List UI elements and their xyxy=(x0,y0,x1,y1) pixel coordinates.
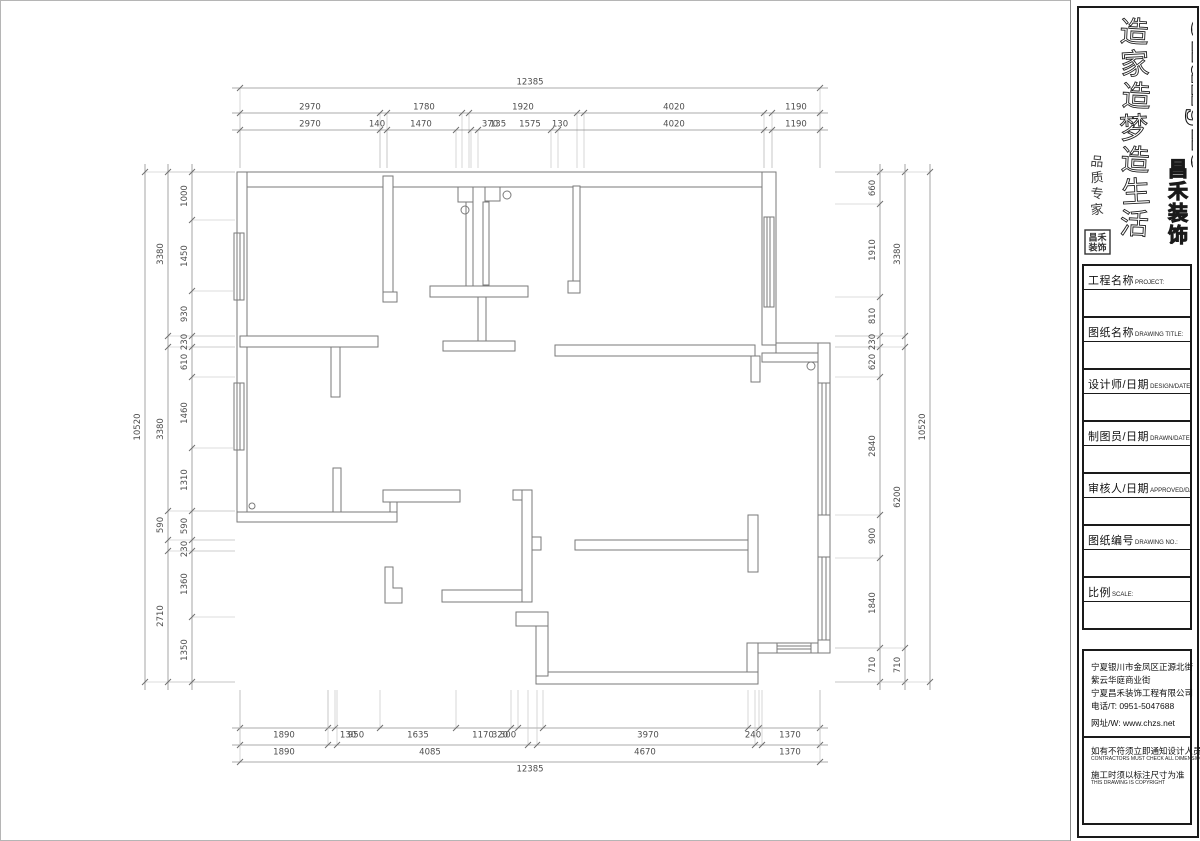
title-block-value-cell xyxy=(1084,550,1190,578)
dim-label: 3970 xyxy=(637,731,659,740)
title-block-row-label: 审核人/日期APPROVED/DATE: xyxy=(1084,474,1190,498)
title-block-row-label: 比例SCALE: xyxy=(1084,578,1190,602)
dim-label: 2970 xyxy=(299,121,321,130)
note-en: THIS DRAWING IS COPYRIGHT xyxy=(1091,780,1186,787)
calligraphy-char: 品 xyxy=(1090,154,1104,170)
dim-label: 930 xyxy=(181,306,190,322)
title-block-value-cell xyxy=(1084,602,1190,628)
floorplan-sheet: { "sheet": { "colors": { "wall_line": "#… xyxy=(0,0,1200,841)
dim-label: 1780 xyxy=(413,104,435,113)
brand-logo-area: Changhe昌禾装饰造家造梦造生活品质专家昌禾装饰 xyxy=(1079,8,1193,260)
dim-label: 300 xyxy=(500,731,516,740)
title-block-row-label: 设计师/日期DESIGN/DATE: xyxy=(1084,370,1190,394)
dim-label: 710 xyxy=(869,657,878,673)
dim-label: 3380 xyxy=(157,418,166,440)
calligraphy-char: 家 xyxy=(1090,201,1105,218)
dim-label: 2710 xyxy=(157,605,166,627)
dim-label: 1370 xyxy=(779,731,801,740)
company-address: 宁夏银川市金凤区正源北街紫云华庭商业街宁夏昌禾装饰工程有限公司电话/T: 095… xyxy=(1084,651,1190,736)
slogan-char: 造 xyxy=(1121,78,1152,113)
dim-label: 1170 xyxy=(472,731,494,740)
dim-label: 950 xyxy=(348,731,364,740)
dim-label: 4670 xyxy=(634,748,656,757)
dim-label: 3380 xyxy=(157,243,166,265)
panel-frame: Changhe昌禾装饰造家造梦造生活品质专家昌禾装饰 工程名称PROJECT:图… xyxy=(1077,6,1199,838)
dim-label: 230 xyxy=(181,334,190,350)
dim-label: 1840 xyxy=(869,592,878,614)
dim-label: 590 xyxy=(157,517,166,533)
note-en: CONTRACTORS MUST CHECK ALL DIMENSIONS ON… xyxy=(1091,756,1186,763)
dim-label: 240 xyxy=(745,731,761,740)
dim-label: 2840 xyxy=(869,435,878,457)
dim-label: 1460 xyxy=(181,402,190,424)
title-block-label-cn: 设计师/日期 xyxy=(1088,379,1149,391)
title-block-value-cell xyxy=(1084,342,1190,370)
title-block-label-en: DRAWING TITLE: xyxy=(1135,332,1183,338)
drawing-notes: 如有不符须立即通知设计人员CONTRACTORS MUST CHECK ALL … xyxy=(1084,736,1190,798)
dim-label: 1190 xyxy=(785,121,807,130)
title-block-row-label: 工程名称PROJECT: xyxy=(1084,266,1190,290)
dim-label: 135 xyxy=(490,121,506,130)
dim-label: 1470 xyxy=(410,121,432,130)
title-block-label-en: SCALE: xyxy=(1112,592,1133,598)
dim-label: 1370 xyxy=(779,748,801,757)
title-block-label-en: APPROVED/DATE: xyxy=(1150,488,1190,494)
title-block-label-en: DRAWN/DATE: xyxy=(1150,436,1190,442)
address-line: 紫云华庭商业街 xyxy=(1091,674,1185,687)
dim-label: 710 xyxy=(894,657,903,673)
title-block-label-cn: 比例 xyxy=(1088,587,1111,599)
dim-label: 1360 xyxy=(181,573,190,595)
slogan-char: 造 xyxy=(1120,142,1151,177)
brand-logo-cn-char: 装 xyxy=(1167,201,1188,225)
dim-label: 610 xyxy=(181,354,190,370)
dim-label: 1450 xyxy=(181,245,190,267)
title-block-label-en: DRAWING NO.: xyxy=(1135,540,1178,546)
dim-label: 4020 xyxy=(663,121,685,130)
dim-label: 10520 xyxy=(919,413,928,440)
title-block-label-cn: 审核人/日期 xyxy=(1088,483,1149,495)
dim-label: 230 xyxy=(181,541,190,557)
dim-label: 620 xyxy=(869,354,878,370)
dim-label: 1000 xyxy=(181,185,190,207)
title-block-value-cell xyxy=(1084,446,1190,474)
title-block-label-cn: 制图员/日期 xyxy=(1088,431,1149,443)
dim-label: 1310 xyxy=(181,469,190,491)
title-block-row-label: 制图员/日期DRAWN/DATE: xyxy=(1084,422,1190,446)
title-block-label-en: PROJECT: xyxy=(1135,280,1164,286)
dim-label: 2970 xyxy=(299,104,321,113)
address-line: 网址/W: www.chzs.net xyxy=(1091,717,1185,730)
dim-label: 810 xyxy=(869,308,878,324)
title-block-row-label: 图纸编号DRAWING NO.: xyxy=(1084,526,1190,550)
title-block-value-cell xyxy=(1084,498,1190,526)
dim-label: 1910 xyxy=(869,239,878,261)
title-block: 工程名称PROJECT:图纸名称DRAWING TITLE:设计师/日期DESI… xyxy=(1082,264,1192,630)
dim-label: 1890 xyxy=(273,731,295,740)
title-panel: Changhe昌禾装饰造家造梦造生活品质专家昌禾装饰 工程名称PROJECT:图… xyxy=(1070,0,1200,841)
dim-label: 12385 xyxy=(516,765,543,774)
note-cn: 如有不符须立即通知设计人员 xyxy=(1091,746,1186,756)
calligraphy-char: 质 xyxy=(1090,170,1105,186)
brand-logo-cn-char: 昌 xyxy=(1168,157,1188,181)
slogan-char: 家 xyxy=(1119,46,1150,81)
calligraphy-char: 专 xyxy=(1090,186,1104,202)
dim-label: 1890 xyxy=(273,748,295,757)
dim-label: 230 xyxy=(869,334,878,350)
title-block-value-cell xyxy=(1084,290,1190,318)
address-line: 电话/T: 0951-5047688 xyxy=(1091,700,1185,713)
dim-label: 660 xyxy=(869,180,878,196)
title-block-label-cn: 工程名称 xyxy=(1088,275,1134,287)
dim-label: 130 xyxy=(552,121,568,130)
title-block-value-cell xyxy=(1084,394,1190,422)
slogan-char: 梦 xyxy=(1118,110,1149,145)
title-block-row-label: 图纸名称DRAWING TITLE: xyxy=(1084,318,1190,342)
dim-label: 6200 xyxy=(894,486,903,508)
info-block: 宁夏银川市金凤区正源北街紫云华庭商业街宁夏昌禾装饰工程有限公司电话/T: 095… xyxy=(1082,649,1192,825)
dim-label: 1575 xyxy=(519,121,541,130)
dim-label: 140 xyxy=(369,121,385,130)
slogan-char: 生 xyxy=(1120,174,1151,209)
brand-logo-cn-char: 禾 xyxy=(1168,179,1188,203)
seal-text-line1: 昌禾 xyxy=(1088,232,1106,244)
seal-text-line2: 装饰 xyxy=(1087,242,1106,254)
title-block-label-cn: 图纸编号 xyxy=(1088,535,1134,547)
dim-label: 12385 xyxy=(516,79,543,88)
seal-stamp: 昌禾装饰 xyxy=(1085,230,1110,254)
title-block-label-en: DESIGN/DATE: xyxy=(1150,384,1190,390)
slogan-char: 活 xyxy=(1119,206,1150,241)
dim-label: 590 xyxy=(181,518,190,534)
brand-logo-cn-char: 饰 xyxy=(1168,223,1188,247)
dim-label: 4020 xyxy=(663,104,685,113)
dim-label: 10520 xyxy=(134,413,143,440)
address-line: 宁夏银川市金凤区正源北街 xyxy=(1091,661,1185,674)
dim-label: 4085 xyxy=(419,748,441,757)
brand-logo-en: Changhe xyxy=(1184,16,1193,172)
dim-label: 1635 xyxy=(407,731,429,740)
dim-label: 1190 xyxy=(785,104,807,113)
dim-label: 900 xyxy=(869,528,878,544)
title-block-label-cn: 图纸名称 xyxy=(1088,327,1134,339)
dim-label: 1350 xyxy=(181,639,190,661)
dim-label: 3380 xyxy=(894,243,903,265)
dim-label: 1920 xyxy=(512,104,534,113)
slogan-char: 造 xyxy=(1119,14,1150,49)
address-line: 宁夏昌禾装饰工程有限公司 xyxy=(1091,687,1185,700)
note-cn: 施工时须以标注尺寸为准 xyxy=(1091,770,1186,780)
